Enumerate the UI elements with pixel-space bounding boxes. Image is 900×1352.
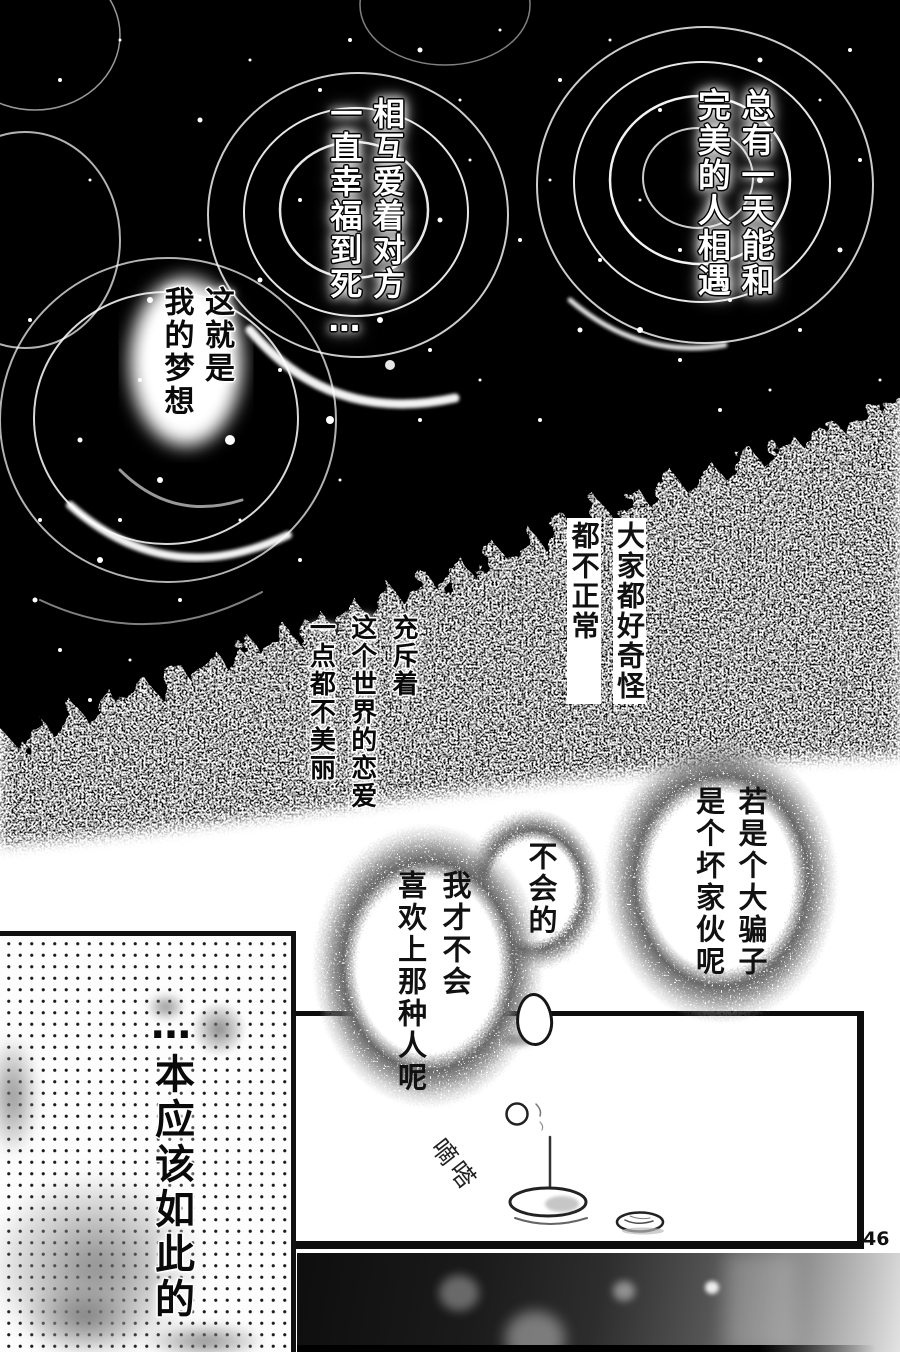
panel-border-bottom	[296, 1241, 864, 1249]
text-column: 充斥着	[389, 614, 416, 810]
text-column: 是个坏家伙呢	[693, 786, 723, 978]
text-column: 我的梦想	[160, 286, 192, 418]
narration-weird: 大家都好奇怪 都不正常	[555, 518, 646, 704]
text-column: 若是个大骗子	[736, 786, 766, 978]
narration-ugly-love: 充斥着 这个世界的恋爱 一点都不美丽	[292, 614, 416, 810]
text-column: 一点都不美丽	[306, 614, 333, 810]
bokeh-light	[705, 1281, 719, 1294]
text-column: 这个世界的恋爱	[347, 614, 374, 810]
text-column: 不会的	[526, 841, 556, 937]
manga-page: 总有一天能和 完美的人相遇 相互爱着对方 一直幸福到死… 这就是 我的梦想 大家…	[0, 0, 900, 1352]
speech-never-like: 我才不会 喜欢上那种人呢	[381, 870, 470, 1094]
page-number: 46	[863, 1228, 889, 1250]
bokeh-light	[505, 1311, 565, 1352]
narration-dream-love: 相互爱着对方 一直幸福到死…	[318, 97, 403, 341]
narration-dream-meet: 总有一天能和 完美的人相遇	[685, 88, 772, 298]
text-column: 一直幸福到死…	[327, 97, 361, 341]
speech-bad-guy: 若是个大骗子 是个坏家伙呢	[681, 786, 766, 978]
text-column: 相互爱着对方	[369, 97, 403, 341]
bokeh-light	[725, 1253, 795, 1352]
text-column: 大家都好奇怪	[613, 518, 646, 704]
text-column: 这就是	[201, 286, 233, 418]
narration-dream-is: 这就是 我的梦想	[151, 286, 232, 418]
text-column: 总有一天能和	[737, 88, 772, 298]
narration-should-be: …本应该如此的	[141, 1002, 192, 1323]
photo-blob	[140, 1321, 270, 1352]
text-column: 完美的人相遇	[694, 88, 729, 298]
text-column: …本应该如此的	[150, 1002, 192, 1323]
bokeh-light	[613, 1281, 635, 1301]
photo-blob	[190, 1000, 248, 1058]
photo-blob	[20, 1276, 150, 1352]
speech-no-way: 不会的	[517, 841, 556, 937]
text-column: 喜欢上那种人呢	[395, 870, 425, 1094]
photo-blob	[0, 1031, 40, 1161]
panel-border-right	[857, 1011, 864, 1249]
bokeh-light	[439, 1275, 479, 1311]
text-column: 都不正常	[567, 518, 600, 704]
night-strip-panel	[297, 1253, 900, 1352]
text-column: 我才不会	[440, 870, 470, 1094]
